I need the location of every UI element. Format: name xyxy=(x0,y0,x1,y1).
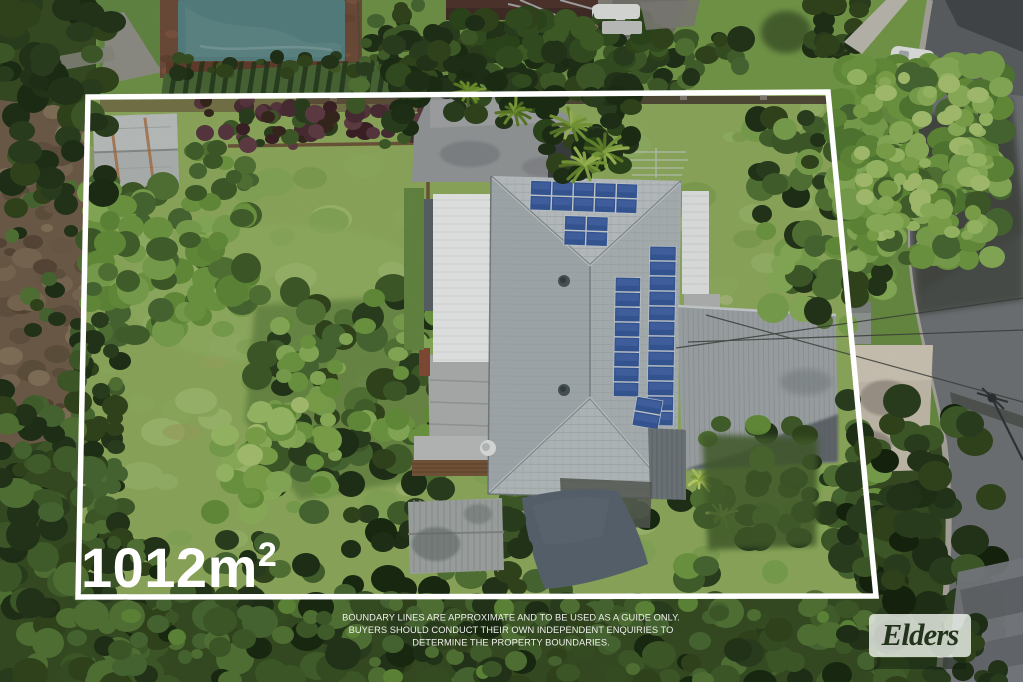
svg-text:BOUNDARY LINES ARE APPROXIMATE: BOUNDARY LINES ARE APPROXIMATE AND TO BE… xyxy=(342,613,680,623)
svg-text:BUYERS SHOULD CONDUCT THEIR OW: BUYERS SHOULD CONDUCT THEIR OWN INDEPEND… xyxy=(349,625,674,635)
svg-text:Elders: Elders xyxy=(881,617,960,652)
svg-text:1012m2: 1012m2 xyxy=(81,536,277,599)
svg-text:DETERMINE THE PROPERTY BOUNDAR: DETERMINE THE PROPERTY BOUNDARIES. xyxy=(412,638,610,648)
